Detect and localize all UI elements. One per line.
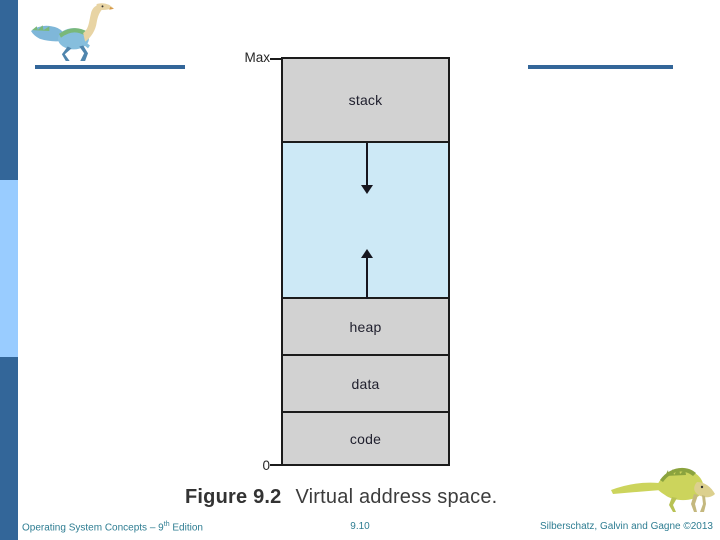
heap-section: heap [283, 299, 448, 356]
footer-authors: Silberschatz, Galvin and Gagne ©2013 [540, 521, 713, 532]
figure-number: Figure 9.2 [185, 486, 281, 508]
data-label: data [351, 376, 379, 392]
title-rule-left [35, 65, 185, 69]
sidebar-bar-middle [0, 180, 18, 357]
max-tick [270, 58, 281, 60]
zero-label: 0 [252, 458, 270, 473]
footer-page-number: 9.10 [330, 521, 390, 532]
slide: Max stack heap data code 0 Figure 9.2Vir… [0, 0, 720, 540]
figure-title: Virtual address space. [295, 486, 497, 508]
arrow-down-icon [361, 185, 373, 194]
dinosaur-icon [610, 460, 716, 515]
figure-caption: Figure 9.2Virtual address space. [185, 486, 497, 509]
sidebar-bar-top [0, 0, 18, 180]
zero-tick [270, 464, 281, 466]
max-label: Max [232, 50, 270, 65]
heap-label: heap [350, 319, 382, 335]
title-rule-right [528, 65, 673, 69]
sidebar-bar-bottom [0, 357, 18, 540]
code-label: code [350, 431, 381, 447]
code-section: code [283, 413, 448, 464]
stack-label: stack [349, 92, 383, 108]
heap-growth-arrow-icon [366, 257, 368, 299]
stack-section: stack [283, 59, 448, 143]
stack-growth-arrow-icon [366, 143, 368, 186]
data-section: data [283, 356, 448, 413]
dinosaur-icon [30, 2, 117, 62]
footer-book-title: Operating System Concepts – 9th Edition [22, 521, 203, 533]
